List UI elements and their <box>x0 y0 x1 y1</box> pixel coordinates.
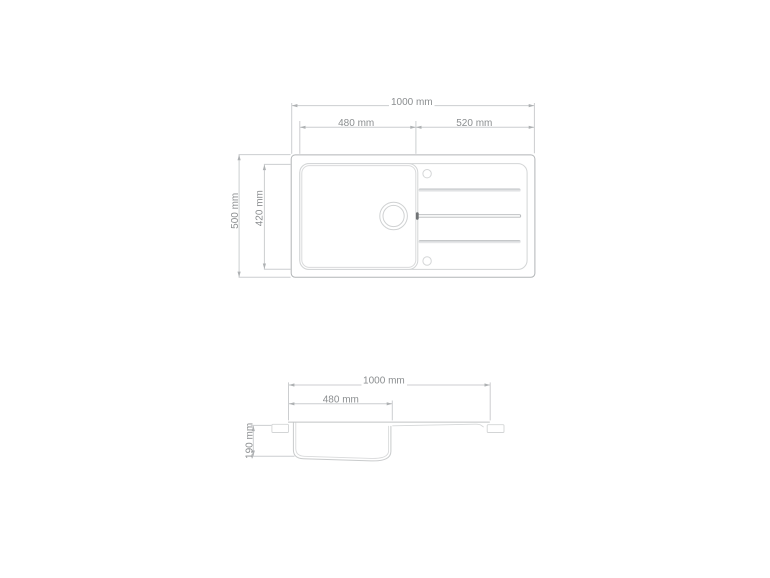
svg-text:420 mm: 420 mm <box>254 190 265 226</box>
svg-text:190 mm: 190 mm <box>244 423 255 459</box>
svg-text:480 mm: 480 mm <box>323 395 359 406</box>
svg-text:520 mm: 520 mm <box>456 118 492 129</box>
svg-text:1000 mm: 1000 mm <box>363 376 405 387</box>
svg-text:480 mm: 480 mm <box>338 118 374 129</box>
svg-text:1000 mm: 1000 mm <box>391 97 433 108</box>
svg-text:500 mm: 500 mm <box>230 193 241 229</box>
